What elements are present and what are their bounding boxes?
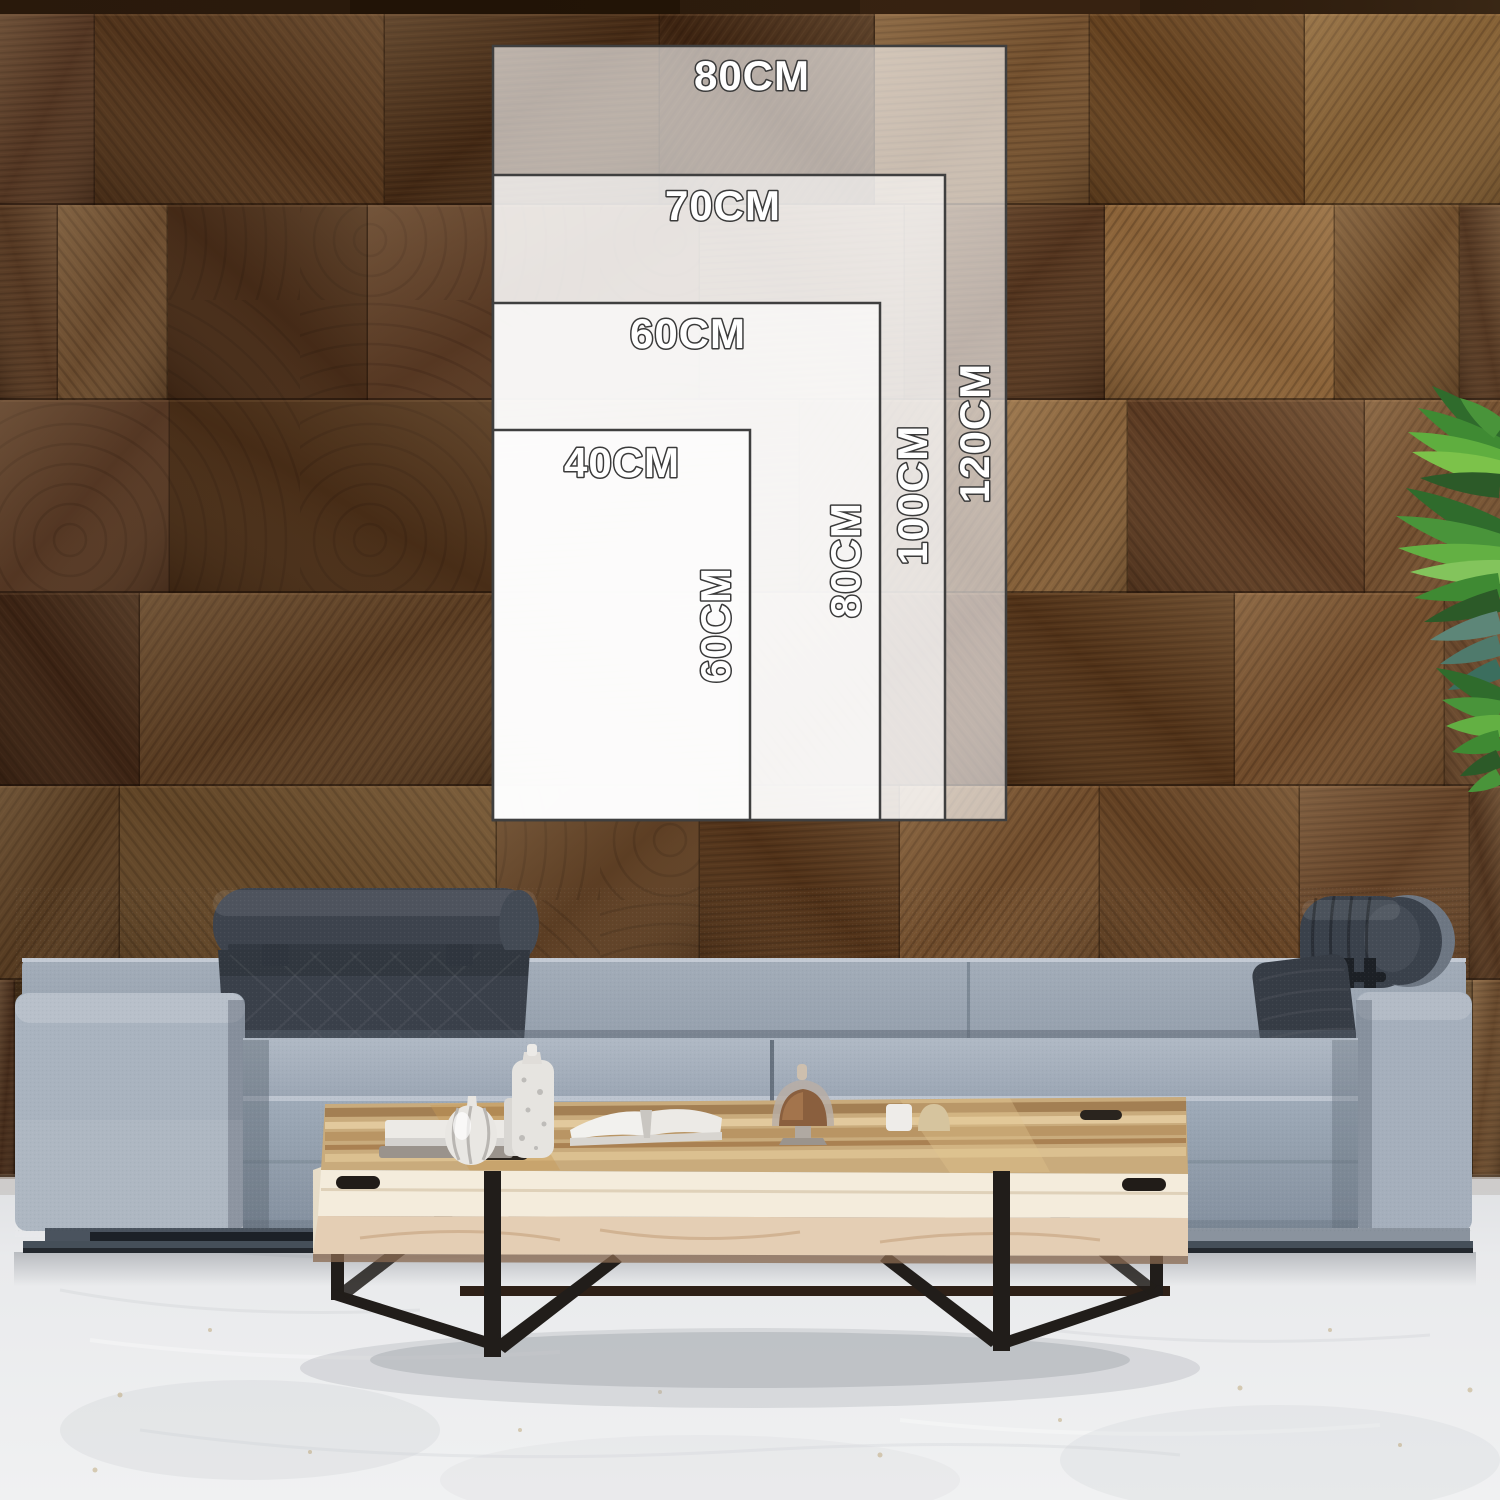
svg-text:70CM: 70CM <box>665 182 781 229</box>
svg-text:120CM: 120CM <box>951 363 998 503</box>
svg-text:80CM: 80CM <box>822 502 869 618</box>
svg-text:80CM: 80CM <box>694 52 810 99</box>
svg-text:40CM: 40CM <box>564 439 680 486</box>
svg-text:60CM: 60CM <box>630 310 746 357</box>
svg-text:60CM: 60CM <box>692 567 739 683</box>
svg-text:100CM: 100CM <box>889 425 936 565</box>
